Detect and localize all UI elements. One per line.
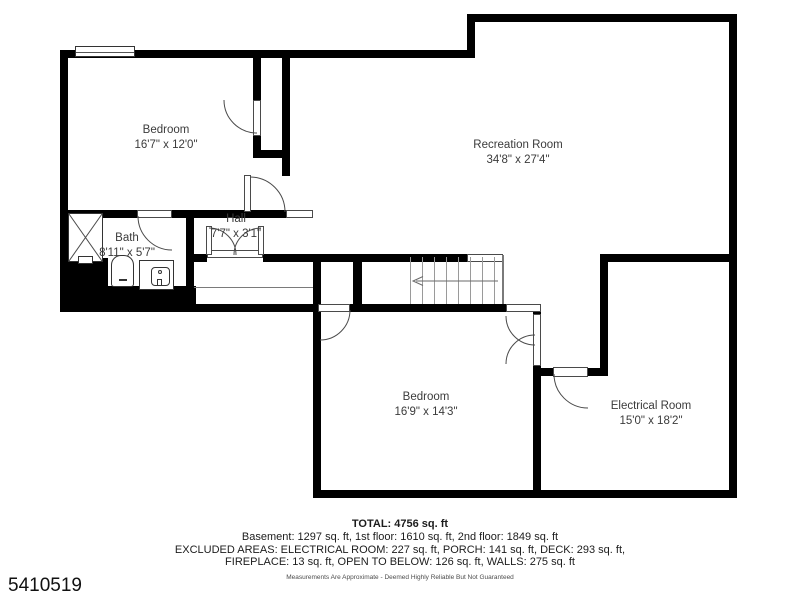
door-arc: [506, 316, 535, 345]
room-name: Bath: [99, 231, 155, 246]
room-dims: 16'9" x 14'3": [394, 405, 457, 420]
room-dims: 16'7" x 12'0": [134, 138, 197, 153]
room-name: Hall: [211, 212, 261, 227]
room-name: Electrical Room: [611, 399, 692, 414]
room-label-hall: Hall 7'7" x 3'1": [211, 212, 261, 242]
room-dims: 8'11" x 5'7": [99, 246, 155, 261]
door-arc: [506, 335, 535, 364]
disclaimer-text: Measurements Are Approximate - Deemed Hi…: [0, 574, 800, 582]
plan-symbols: [0, 0, 800, 600]
door-arc: [554, 374, 588, 408]
room-name: Recreation Room: [473, 138, 562, 153]
room-name: Bedroom: [394, 390, 457, 405]
room-dims: 15'0" x 18'2": [611, 414, 692, 429]
room-dims: 34'8" x 27'4": [473, 153, 562, 168]
room-name: Bedroom: [134, 123, 197, 138]
room-label-electrical: Electrical Room 15'0" x 18'2": [611, 399, 692, 429]
area-summary: TOTAL: 4756 sq. ft Basement: 1297 sq. ft…: [0, 518, 800, 582]
room-label-bedroom-1: Bedroom 16'7" x 12'0": [134, 123, 197, 153]
excluded-areas-text-1: EXCLUDED AREAS: ELECTRICAL ROOM: 227 sq.…: [0, 544, 800, 557]
room-label-recreation: Recreation Room 34'8" x 27'4": [473, 138, 562, 168]
room-dims: 7'7" x 3'1": [211, 227, 261, 242]
door-arc: [250, 177, 285, 212]
door-arc: [320, 310, 350, 340]
plan-id: 5410519: [8, 575, 82, 597]
room-label-bath: Bath 8'11" x 5'7": [99, 231, 155, 261]
total-area-text: TOTAL: 4756 sq. ft: [0, 518, 800, 531]
room-label-bedroom-2: Bedroom 16'9" x 14'3": [394, 390, 457, 420]
floor-plan: Bedroom 16'7" x 12'0" Recreation Room 34…: [0, 0, 800, 600]
excluded-areas-text-2: FIREPLACE: 13 sq. ft, OPEN TO BELOW: 126…: [0, 556, 800, 569]
stairs-direction-arrow-icon: [413, 277, 498, 286]
door-arc: [224, 100, 257, 133]
floor-areas-text: Basement: 1297 sq. ft, 1st floor: 1610 s…: [0, 531, 800, 544]
